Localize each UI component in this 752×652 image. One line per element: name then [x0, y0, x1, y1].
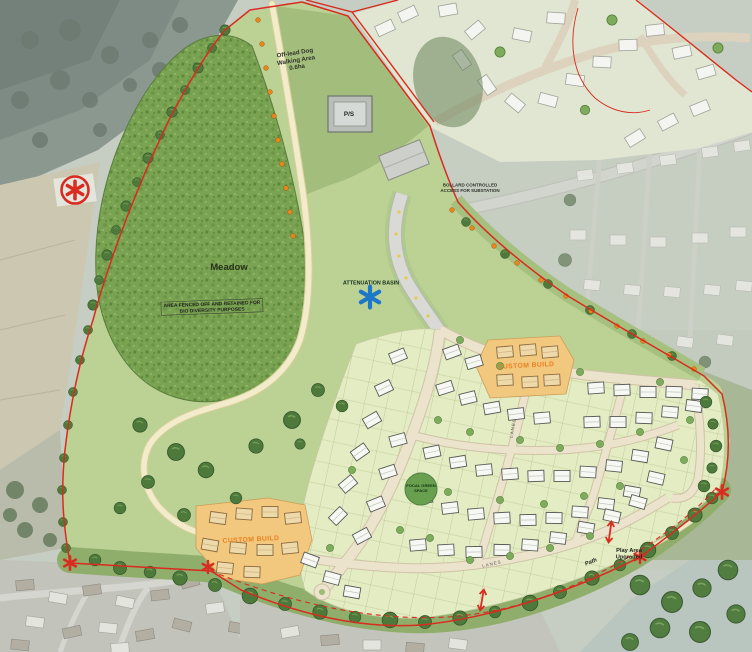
- meadow-label: Meadow: [210, 262, 247, 273]
- attenuation-basin-label: ATTENUATION BASIN: [343, 280, 399, 286]
- masterplan-canvas: Off-lead Dog Walking Area 0.6ha Meadow A…: [0, 0, 752, 652]
- play-area-label: Play Area Upgraded: [616, 547, 643, 560]
- bollard-access-label: BOLLARD CONTROLLED ACCESS FOR SUBSTATION: [440, 183, 499, 194]
- focal-green-label: FOCAL GREEN SPACE: [406, 483, 435, 493]
- pumping-station-label: P/S: [344, 110, 354, 117]
- left-circled-asterisk-marker: [53, 173, 97, 206]
